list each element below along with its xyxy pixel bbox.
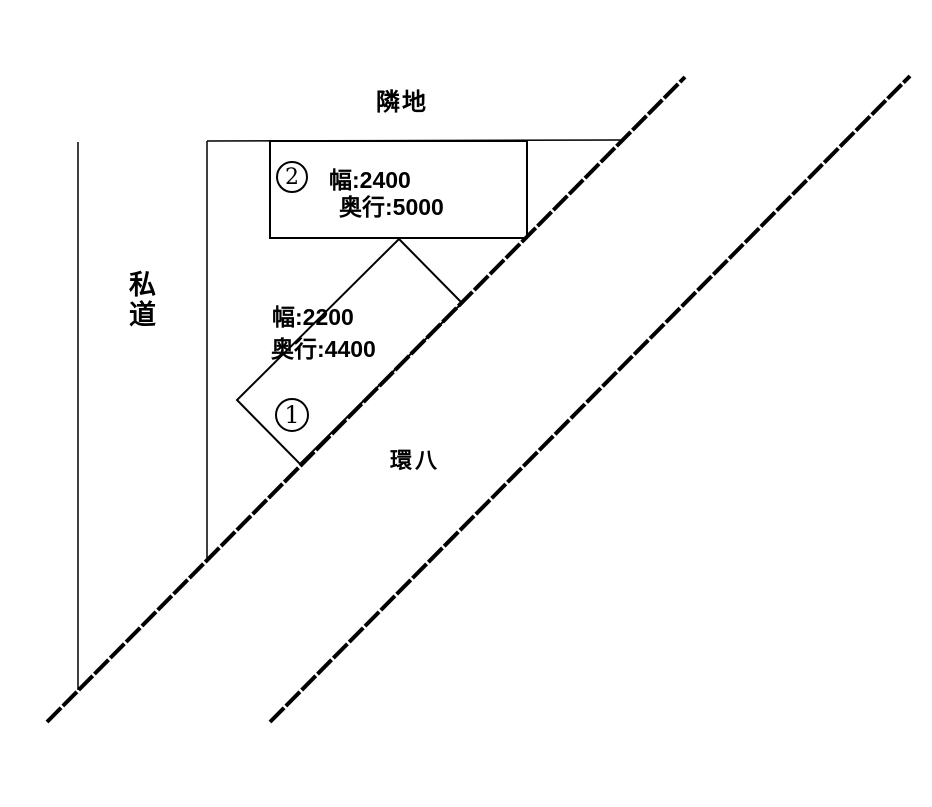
kanpachi-road-label: 環八	[390, 450, 440, 472]
parking-space-2-number-badge: 2	[276, 161, 308, 193]
parking-space-2-depth-label: 奥行:5000	[339, 196, 444, 219]
parking-space-2-number: 2	[285, 165, 299, 190]
neighbor-land-label: 隣地	[376, 91, 428, 115]
parking-space-2-width-label: 幅:2400	[329, 169, 411, 192]
private-road-label: 私道	[126, 270, 153, 330]
diagram-linework	[0, 0, 932, 807]
site-layout-diagram: 隣地 私道 環八 2 幅:2400 奥行:5000 1 幅:2200 奥行:44…	[0, 0, 932, 807]
parking-space-1-depth-label: 奥行:4400	[271, 338, 376, 361]
parking-space-1-number-badge: 1	[275, 398, 309, 432]
parking-space-1-width-label: 幅:2200	[272, 306, 354, 329]
parking-space-1-number: 1	[284, 401, 299, 429]
